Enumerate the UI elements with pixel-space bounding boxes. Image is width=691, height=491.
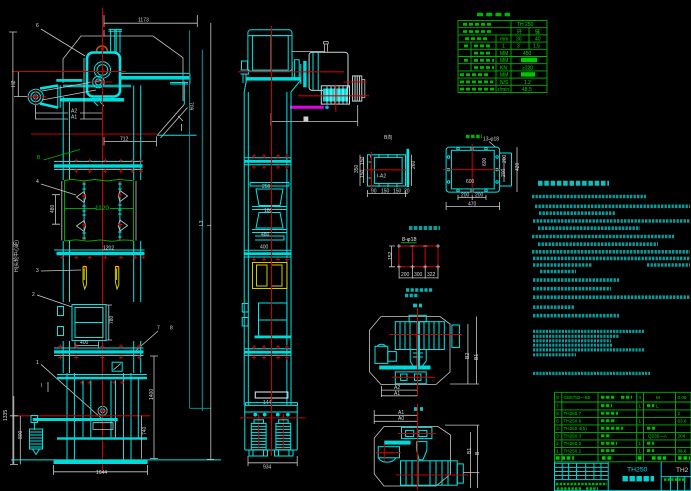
svg-text:1: 1 [639, 419, 642, 424]
svg-text:≥320: ≥320 [522, 65, 533, 71]
svg-text:TH250.1: TH250.1 [564, 448, 582, 453]
svg-text:260: 260 [411, 160, 417, 169]
svg-text:20: 20 [404, 188, 410, 194]
svg-text:800: 800 [18, 430, 24, 439]
svg-text:TH250: TH250 [627, 467, 648, 474]
svg-text:780: 780 [109, 315, 115, 324]
svg-text:TH250.3: TH250.3 [564, 434, 582, 439]
svg-text:1: 1 [639, 404, 642, 409]
svg-text:A1: A1 [394, 391, 400, 397]
svg-text:4: 4 [639, 395, 642, 400]
svg-text:环: 环 [517, 29, 522, 35]
svg-text:709: 709 [188, 102, 194, 111]
svg-text:1.5: 1.5 [533, 44, 540, 50]
svg-text:322: 322 [427, 272, 436, 278]
svg-text:5: 5 [556, 419, 559, 424]
svg-text:mm: mm [500, 37, 508, 43]
svg-text:KN: KN [500, 65, 507, 71]
svg-text:0.09: 0.09 [678, 395, 687, 400]
svg-text:400: 400 [80, 340, 89, 346]
svg-text:TH250.4(5): TH250.4(5) [564, 426, 588, 431]
svg-text:r/min: r/min [498, 87, 509, 93]
svg-text:250: 250 [262, 184, 271, 190]
svg-text:链: 链 [535, 28, 540, 35]
svg-text:600: 600 [466, 179, 475, 185]
svg-text:88.6: 88.6 [678, 448, 687, 453]
svg-text:200: 200 [501, 168, 507, 177]
svg-text:1202: 1202 [103, 246, 114, 252]
svg-text:1644: 1644 [96, 470, 107, 476]
svg-text:A0: A0 [398, 416, 404, 422]
svg-text:600: 600 [482, 157, 488, 166]
svg-text:H(头轮中心距): H(头轮中心距) [13, 240, 20, 272]
svg-text:2: 2 [32, 292, 35, 298]
svg-text:8: 8 [556, 395, 559, 400]
svg-text:712: 712 [120, 136, 129, 142]
svg-text:TH250.2: TH250.2 [564, 441, 582, 446]
svg-text:A2: A2 [71, 108, 77, 114]
svg-text:420: 420 [515, 162, 521, 171]
svg-text:B1: B1 [467, 448, 473, 454]
svg-text:30: 30 [516, 37, 522, 43]
svg-text:1120: 1120 [95, 205, 109, 212]
svg-text:152: 152 [388, 251, 394, 260]
svg-text:8: 8 [170, 326, 173, 332]
svg-text:200: 200 [475, 193, 484, 199]
svg-text:H2: H2 [11, 80, 17, 87]
svg-text:L3: L3 [199, 220, 205, 226]
svg-text:MM: MM [500, 73, 508, 79]
svg-text:3: 3 [556, 434, 559, 439]
svg-text:400: 400 [260, 245, 269, 251]
svg-text:8-φ18: 8-φ18 [402, 237, 417, 243]
svg-text:48.5: 48.5 [522, 87, 532, 93]
svg-text:200: 200 [502, 154, 508, 163]
svg-text:150: 150 [381, 188, 390, 194]
svg-text:1: 1 [502, 44, 505, 50]
svg-text:I: I [41, 383, 42, 389]
svg-text:1.2: 1.2 [524, 80, 531, 86]
svg-text:4: 4 [556, 426, 559, 431]
svg-text:M: M [656, 395, 660, 400]
svg-text:1335: 1335 [3, 410, 9, 421]
svg-text:2: 2 [556, 441, 559, 446]
svg-text:B2: B2 [465, 353, 471, 359]
svg-text:1173: 1173 [138, 18, 149, 24]
svg-text:200: 200 [461, 193, 470, 199]
svg-text:13-φ18: 13-φ18 [483, 137, 499, 143]
svg-text:6: 6 [36, 23, 39, 29]
svg-text:1: 1 [36, 360, 39, 366]
svg-text:4: 4 [36, 179, 39, 185]
svg-text:740: 740 [142, 426, 148, 435]
svg-text:I-A2: I-A2 [377, 174, 386, 180]
svg-text:480: 480 [50, 204, 56, 213]
svg-text:934: 934 [263, 465, 272, 471]
svg-text:B向: B向 [384, 134, 392, 141]
svg-text:MM: MM [500, 51, 508, 57]
svg-text:204: 204 [678, 434, 686, 439]
svg-text:1: 1 [639, 448, 642, 453]
svg-text:150: 150 [360, 169, 366, 178]
svg-text:N/S: N/S [500, 80, 509, 86]
svg-text:GB5782—86: GB5782—86 [564, 395, 591, 400]
svg-text:300: 300 [414, 272, 423, 278]
svg-text:450: 450 [523, 51, 532, 57]
svg-text:L: L [656, 404, 659, 409]
svg-text:7: 7 [556, 404, 559, 409]
svg-text:TH250.7: TH250.7 [564, 411, 582, 416]
svg-text:480: 480 [261, 232, 270, 238]
svg-text:200: 200 [401, 272, 410, 278]
svg-text:6: 6 [556, 411, 559, 416]
svg-text:1400: 1400 [149, 389, 155, 400]
svg-text:TH 250: TH 250 [517, 22, 534, 28]
svg-text:1: 1 [556, 448, 559, 453]
svg-text:3: 3 [517, 44, 520, 50]
svg-text:90: 90 [371, 188, 377, 194]
svg-text:TH2: TH2 [676, 467, 689, 474]
svg-text:B1: B1 [474, 354, 480, 360]
svg-text:470: 470 [468, 201, 477, 207]
svg-text:1: 1 [639, 441, 642, 446]
svg-text:3: 3 [36, 268, 39, 274]
svg-text:2: 2 [678, 411, 681, 416]
svg-text:L: L [207, 223, 213, 226]
svg-text:40: 40 [535, 37, 541, 43]
svg-text:150: 150 [360, 156, 366, 165]
svg-text:Q235—A: Q235—A [648, 434, 668, 439]
svg-text:A1: A1 [71, 115, 77, 121]
svg-text:150: 150 [393, 188, 402, 194]
svg-text:63.6: 63.6 [678, 419, 687, 424]
svg-text:MM: MM [500, 58, 508, 64]
svg-text:7: 7 [157, 326, 160, 332]
svg-text:TH250.6: TH250.6 [564, 419, 582, 424]
